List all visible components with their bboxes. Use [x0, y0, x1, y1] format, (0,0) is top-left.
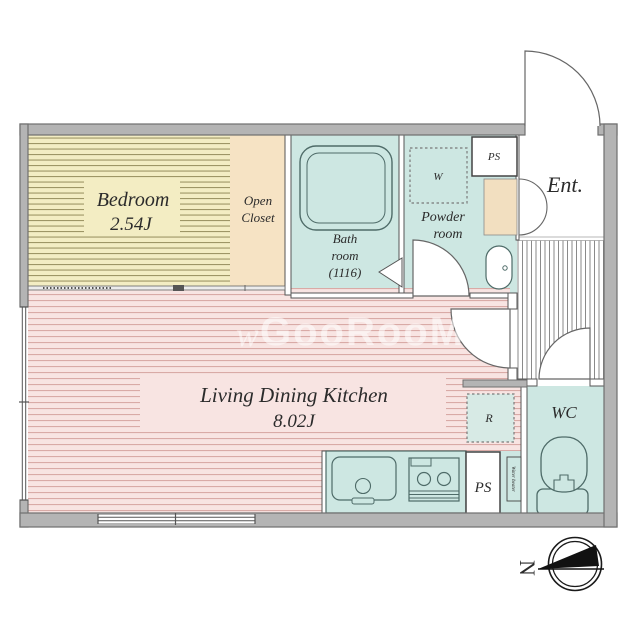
- window-left: [20, 307, 28, 500]
- bathtub-icon: [300, 146, 392, 230]
- wall-ldk-hall-lower: [508, 368, 517, 381]
- partition-handle: [173, 285, 184, 291]
- ps-bottom-label: PS: [474, 480, 492, 496]
- bath-label-2: room: [332, 248, 359, 263]
- ps-top-label: PS: [487, 151, 501, 163]
- bath-label-1: Bath: [333, 231, 358, 246]
- entrance-door-swing: [525, 51, 600, 126]
- toilet-icon: [537, 489, 588, 515]
- open-closet-label-1: Open: [244, 193, 272, 208]
- watermark: w GooRooM: [236, 310, 465, 354]
- water-heater-label: Water heater: [510, 466, 515, 492]
- bedroom-partition: [28, 285, 285, 291]
- wall-wc-kitchen: [521, 386, 527, 513]
- compass-north-label: N: [515, 560, 540, 576]
- bedroom-label: Bedroom: [97, 189, 170, 211]
- floor-plan-page: Bedroom 2.54J Open Closet Bath room (111…: [0, 0, 640, 640]
- washer-label: W: [433, 171, 443, 183]
- watermark-text: GooRooM: [260, 310, 465, 354]
- washbasin-icon: [486, 246, 512, 289]
- watermark-mark: w: [236, 317, 259, 354]
- powder-label-1: Powder: [420, 210, 465, 225]
- fridge-label: R: [484, 411, 493, 425]
- wall-right: [604, 124, 617, 527]
- wall-stub-hall: [463, 380, 527, 387]
- bath-label-3: (1116): [329, 265, 362, 280]
- compass: N: [515, 538, 604, 591]
- entrance-step: [517, 237, 605, 241]
- entrance-label: Ent.: [546, 172, 583, 197]
- counter-left-edge: [322, 451, 326, 513]
- wall-closet-bath: [285, 135, 291, 295]
- ldk-label: Living Dining Kitchen: [199, 383, 388, 407]
- wc-label: WC: [551, 403, 577, 422]
- wall-left-upper: [20, 124, 28, 307]
- ldk-size-label: 8.02J: [273, 411, 316, 432]
- open-closet-label-2: Closet: [241, 210, 275, 225]
- window-bottom: [98, 515, 255, 523]
- wall-hall-wc-right: [590, 379, 605, 386]
- wall-bath-ldk: [291, 293, 413, 298]
- wall-ldk-hall-upper: [508, 293, 517, 309]
- wall-top-left-span: [20, 124, 525, 135]
- floor-plan-canvas: Bedroom 2.54J Open Closet Bath room (111…: [0, 0, 640, 640]
- bedroom-size-label: 2.54J: [110, 214, 153, 235]
- powder-label-2: room: [433, 227, 462, 242]
- shoe-cabinet: [484, 179, 517, 235]
